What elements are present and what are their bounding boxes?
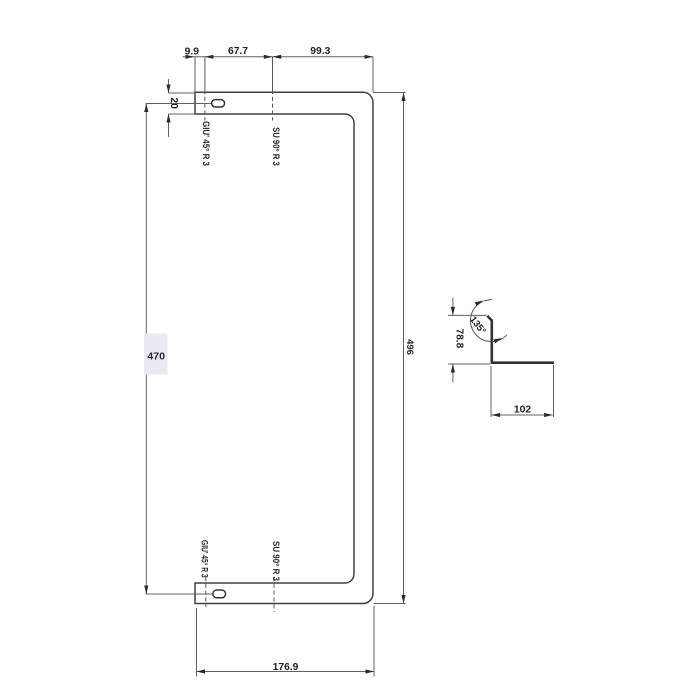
svg-text:78.8: 78.8: [454, 329, 465, 349]
svg-text:67.7: 67.7: [228, 46, 248, 57]
svg-text:470: 470: [147, 351, 165, 363]
svg-text:102: 102: [514, 405, 531, 416]
svg-text:GIU' 45° R 3: GIU' 45° R 3: [200, 540, 210, 578]
svg-text:176.9: 176.9: [273, 662, 299, 673]
svg-text:9.9: 9.9: [185, 46, 200, 57]
svg-text:135°: 135°: [467, 314, 488, 336]
svg-text:GIU' 45° R 3: GIU' 45° R 3: [201, 121, 211, 166]
svg-text:496: 496: [404, 339, 415, 355]
svg-text:99.3: 99.3: [310, 46, 330, 57]
svg-text:SU 90° R 3: SU 90° R 3: [271, 127, 281, 166]
svg-text:SU 90° R 3: SU 90° R 3: [271, 541, 281, 581]
